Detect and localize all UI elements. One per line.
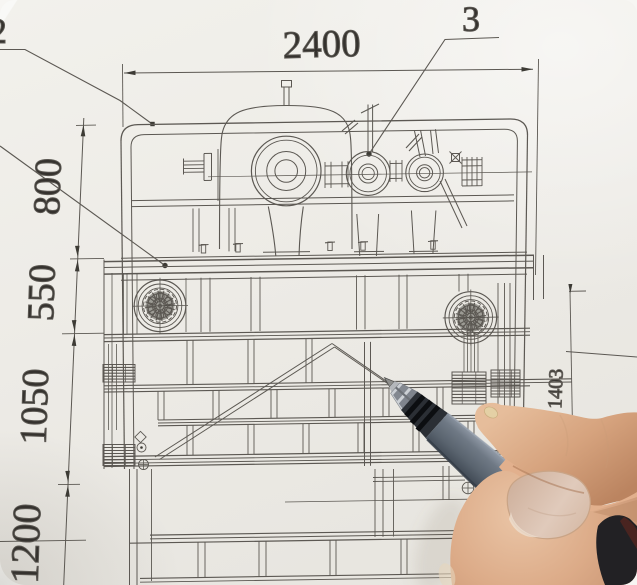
svg-text:550: 550 xyxy=(20,263,64,321)
svg-text:800: 800 xyxy=(26,157,70,215)
svg-text:2400: 2400 xyxy=(282,22,361,67)
svg-text:1200: 1200 xyxy=(2,503,50,585)
svg-text:2: 2 xyxy=(0,11,7,51)
svg-text:1403: 1403 xyxy=(544,368,567,409)
svg-text:1050: 1050 xyxy=(13,368,58,445)
svg-text:3: 3 xyxy=(462,0,480,39)
